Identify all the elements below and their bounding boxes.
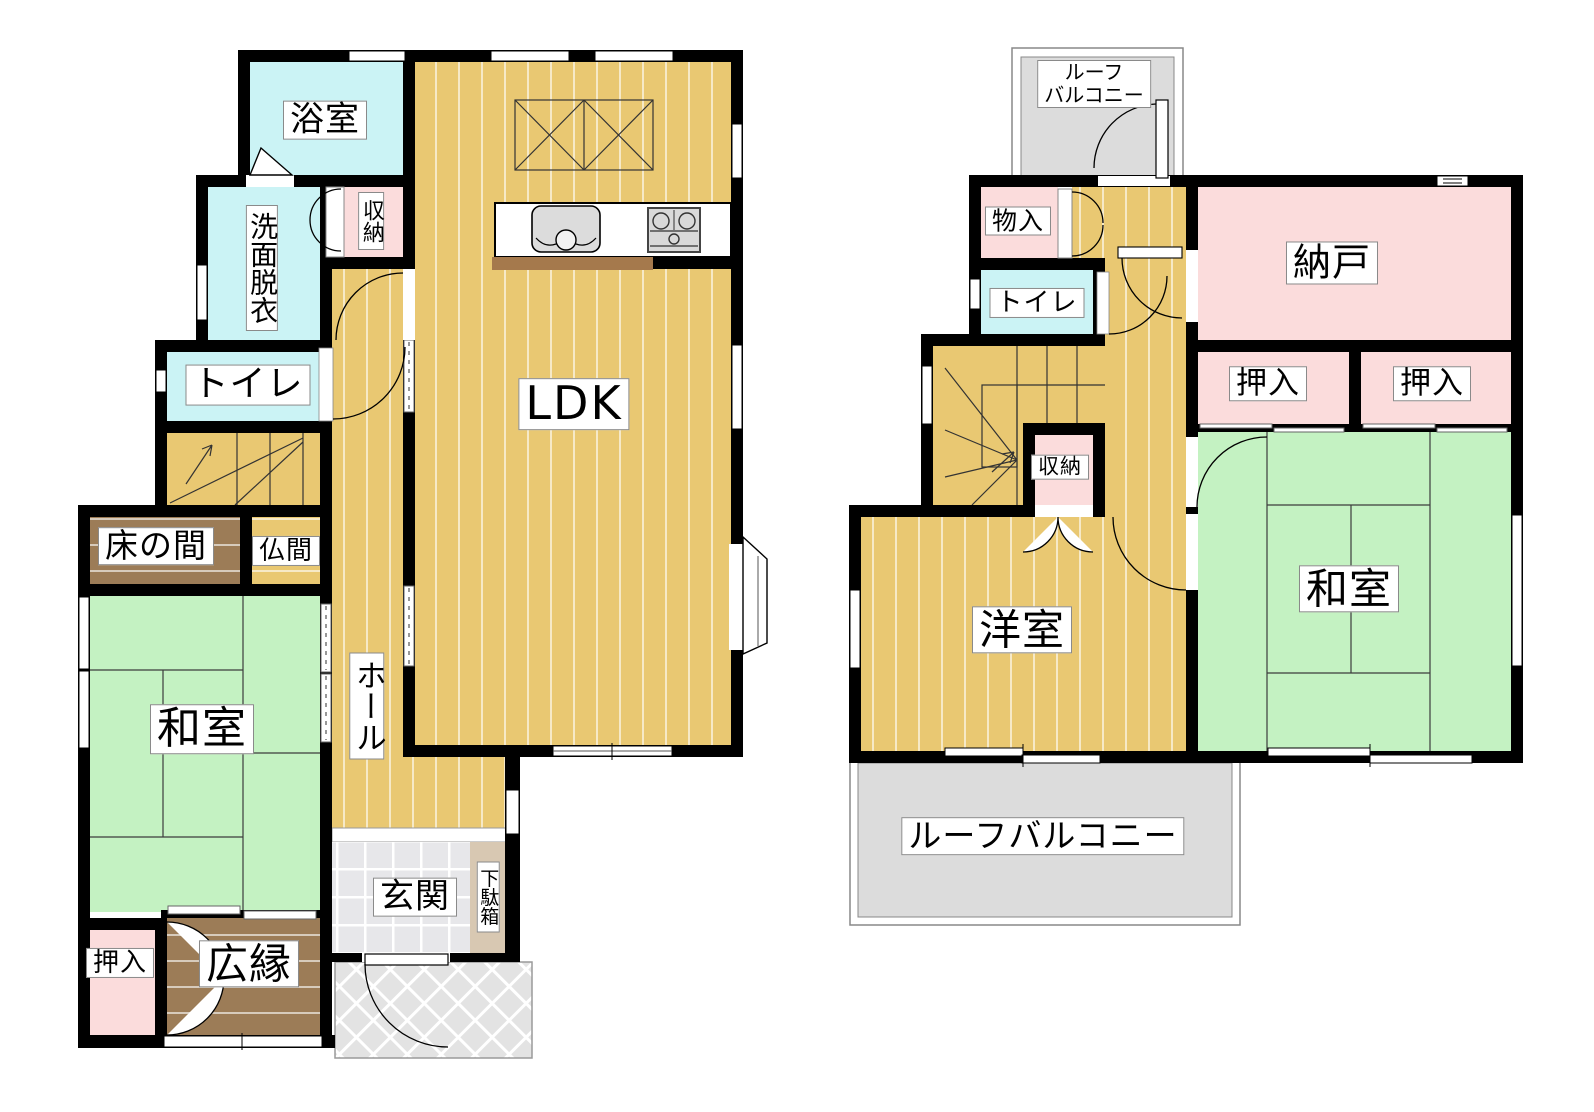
label-roof-balcony-top: ルーフ バルコニー (1037, 60, 1151, 108)
counter-ledge (492, 257, 653, 270)
room-closet-1f (90, 930, 155, 1035)
label-storage-2f: 収納 (1031, 455, 1089, 480)
label-bath: 浴室 (283, 101, 367, 140)
hall-2f (1105, 258, 1186, 517)
entrance-step (332, 828, 508, 842)
balcony-door-leaf (1156, 100, 1168, 178)
label-entrance: 玄関 (373, 878, 457, 917)
bath-door-gap (246, 175, 294, 187)
label-hall: ホール (349, 653, 384, 760)
stairs-1f (167, 433, 320, 505)
label-japanese-2f: 和室 (1299, 565, 1399, 612)
label-washroom: 洗面脱衣 (246, 205, 278, 331)
label-storage-1f: 収納 (358, 192, 384, 250)
label-storeroom: 納戸 (1286, 241, 1378, 284)
label-closet-2f-left: 押入 (1229, 366, 1307, 401)
label-tokonoma: 床の間 (98, 527, 214, 565)
label-small-storage: 物入 (985, 207, 1051, 236)
bay-window (729, 537, 767, 654)
label-veranda: 広縁 (199, 940, 299, 987)
entrance-porch (335, 962, 532, 1058)
floor2 (849, 48, 1523, 925)
entrance-door-leaf (365, 954, 448, 965)
sink-icon (532, 206, 600, 252)
label-butsuma: 仏間 (252, 536, 320, 566)
label-western-room: 洋室 (972, 606, 1072, 653)
label-closet-1f: 押入 (86, 948, 154, 978)
label-toilet-2f: トイレ (989, 288, 1084, 318)
label-roof-balcony-top-line2: バルコニー (1044, 83, 1144, 107)
stove-icon (648, 208, 700, 252)
label-closet-2f-right: 押入 (1393, 366, 1471, 401)
label-japanese-1f: 和室 (150, 704, 254, 754)
label-ldk: LDK (518, 378, 629, 430)
label-roof-balcony-bottom: ルーフバルコニー (901, 817, 1184, 855)
label-roof-balcony-top-line1: ルーフ (1065, 60, 1124, 84)
storeroom-door-leaf (1118, 247, 1182, 258)
label-toilet-1f: トイレ (185, 365, 310, 406)
label-shoe-cabinet: 下駄箱 (477, 862, 500, 933)
floor-plan: 浴室 洗面脱衣 収納 トイレ 床の間 仏間 和室 ホール LDK 玄関 下駄箱 … (0, 0, 1594, 1112)
